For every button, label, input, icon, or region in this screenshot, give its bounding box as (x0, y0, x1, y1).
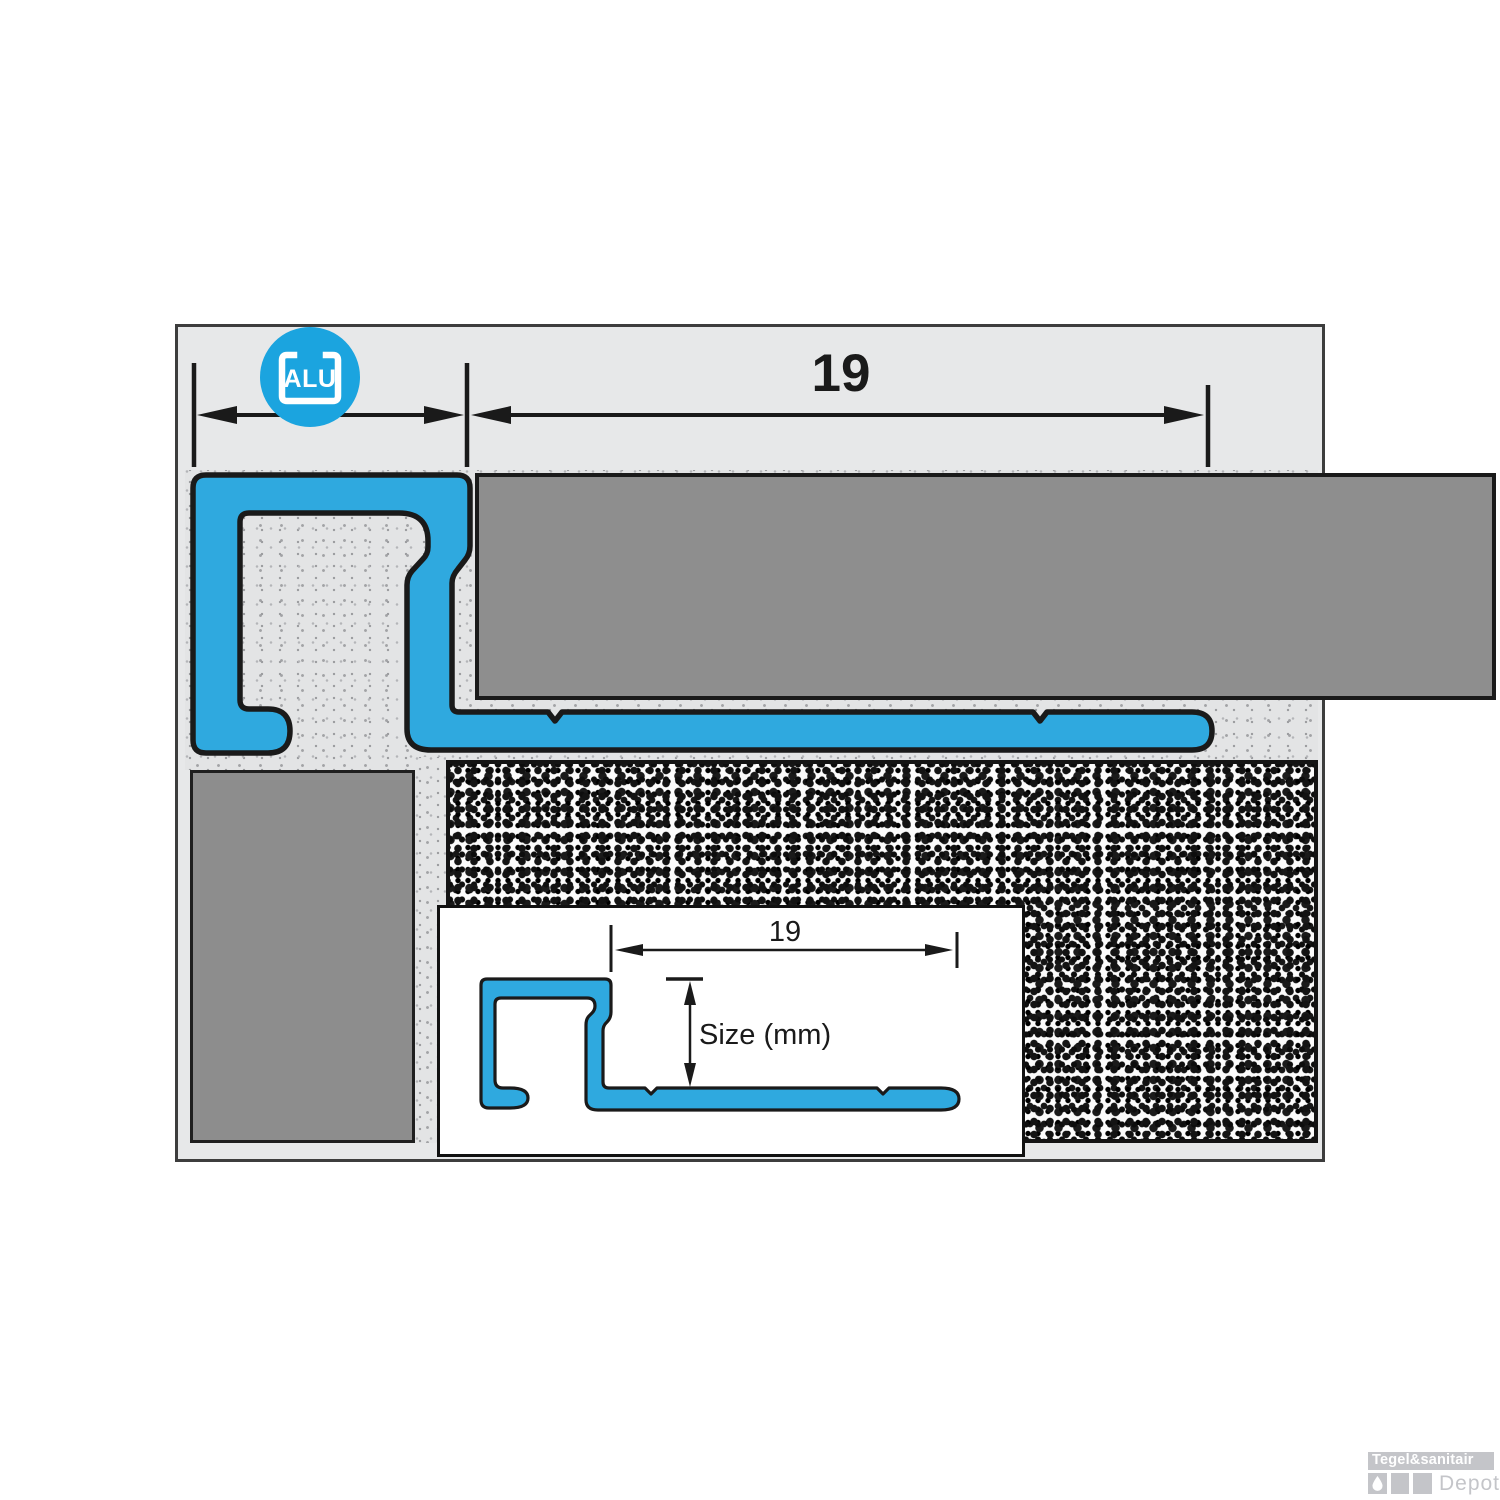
alu-badge: ALU (260, 327, 360, 427)
inset-dimension-label-19: 19 (769, 916, 801, 948)
water-drop-icon (1372, 1476, 1383, 1491)
dimension-label-19: 19 (812, 344, 871, 403)
size-dimension-label: Size (mm) (699, 1019, 831, 1051)
channel-bracket-icon (282, 355, 338, 401)
arrowhead-icon (925, 944, 953, 956)
watermark-square (1391, 1473, 1410, 1494)
alu-badge-label: ALU (284, 365, 337, 393)
inset-profile-drawing: 19 Size (mm) (440, 908, 1022, 1154)
product-diagram-page: 19 ALU 19 (0, 0, 1500, 1500)
arrowhead-icon (615, 944, 643, 956)
inset-detail-box: 19 Size (mm) (437, 905, 1025, 1157)
watermark-sub-brand: Depot (1439, 1473, 1500, 1494)
arrowhead-icon (1164, 406, 1204, 424)
arrowhead-icon (197, 406, 237, 424)
alu-badge-circle (260, 327, 360, 427)
watermark: Tegel&sanitair Depot (1368, 1452, 1500, 1494)
watermark-logo-row: Depot (1368, 1473, 1500, 1494)
trim-profile-diagram: 19 ALU 19 (175, 324, 1325, 1162)
watermark-square (1413, 1473, 1432, 1494)
wall-tile-cross-section (190, 770, 415, 1143)
arrowhead-icon (684, 981, 696, 1005)
arrowhead-icon (424, 406, 464, 424)
arrowhead-icon (471, 406, 511, 424)
arrowhead-icon (684, 1063, 696, 1087)
tile-cross-section (475, 473, 1496, 700)
watermark-square (1368, 1473, 1387, 1494)
watermark-brand: Tegel&sanitair (1368, 1452, 1494, 1470)
